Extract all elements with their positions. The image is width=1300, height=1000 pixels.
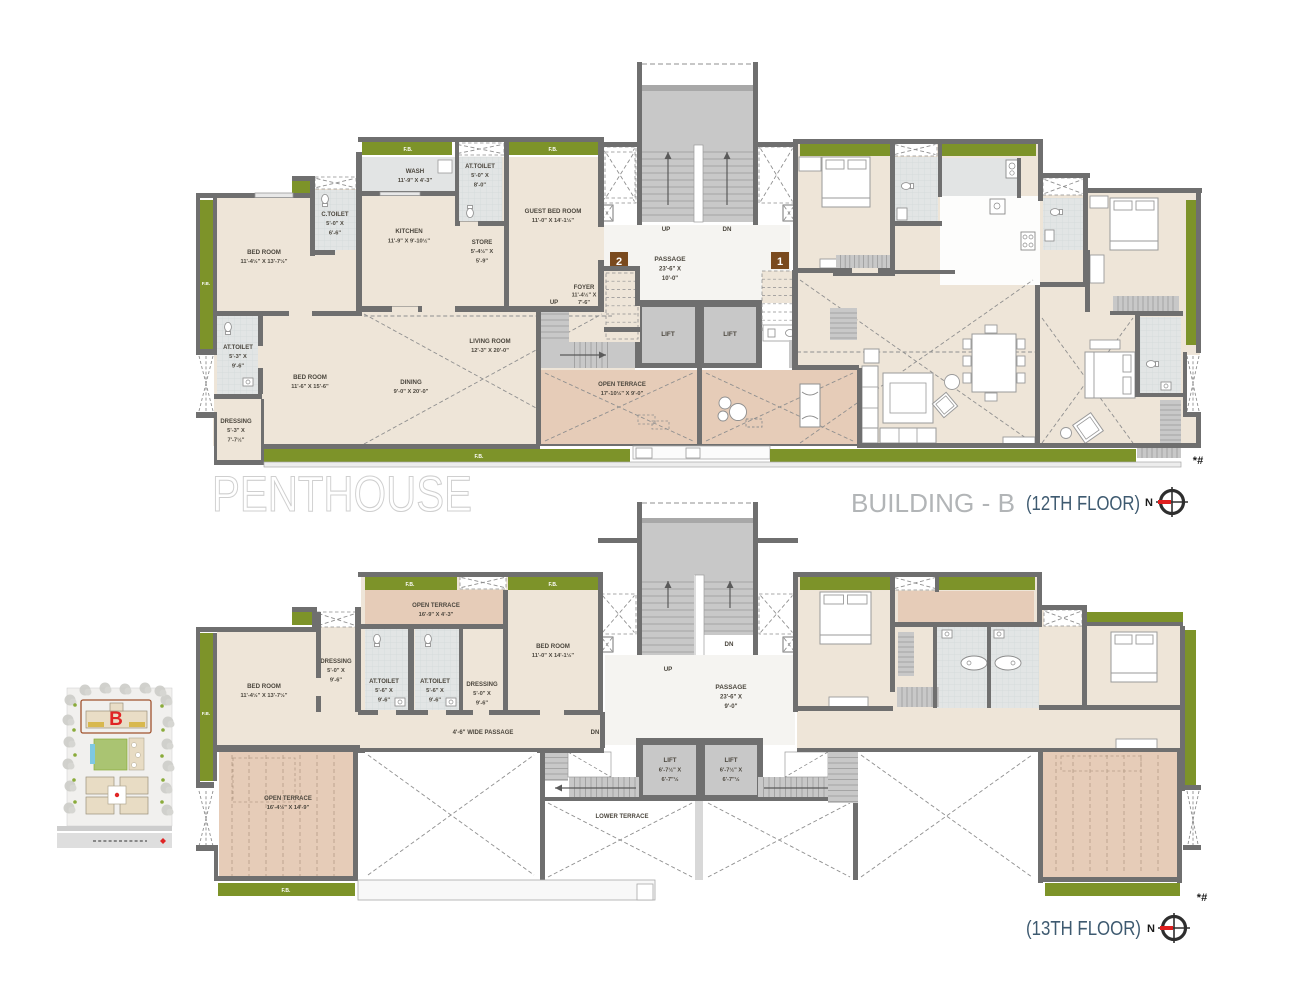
svg-text:GUEST BED ROOM: GUEST BED ROOM <box>525 208 582 215</box>
svg-text:23'-6" X: 23'-6" X <box>720 695 742 701</box>
svg-text:BED ROOM: BED ROOM <box>247 249 281 256</box>
svg-text:BED ROOM: BED ROOM <box>293 374 327 381</box>
svg-text:FOYER: FOYER <box>574 285 595 291</box>
svg-text:F.B.: F.B. <box>549 582 559 588</box>
svg-text:9'-6": 9'-6" <box>429 697 442 703</box>
svg-text:11'-0" X 14'-1½": 11'-0" X 14'-1½" <box>532 217 575 224</box>
svg-text:6'-7½" X: 6'-7½" X <box>659 767 682 774</box>
svg-text:16'-9" X 4'-3": 16'-9" X 4'-3" <box>419 612 454 618</box>
svg-text:UP: UP <box>664 666 673 673</box>
svg-text:AT.TOILET: AT.TOILET <box>369 679 399 685</box>
svg-text:11'-4½" X: 11'-4½" X <box>572 292 597 299</box>
svg-text:F.B.: F.B. <box>202 711 210 716</box>
svg-text:LIFT: LIFT <box>723 331 737 338</box>
svg-text:9'-0" X 20'-0": 9'-0" X 20'-0" <box>394 389 429 395</box>
svg-text:6'-6": 6'-6" <box>329 230 342 236</box>
svg-text:5'-9": 5'-9" <box>476 258 489 264</box>
svg-text:LIFT: LIFT <box>664 757 677 764</box>
svg-text:5'-6" X: 5'-6" X <box>426 688 444 694</box>
svg-text:6'-7½" X: 6'-7½" X <box>720 767 743 774</box>
svg-text:8'-0": 8'-0" <box>474 182 487 188</box>
svg-text:C.TOILET: C.TOILET <box>321 212 349 218</box>
svg-text:DN: DN <box>591 730 600 736</box>
svg-text:F.B.: F.B. <box>549 147 559 153</box>
svg-text:11'-4½" X 13'-7½": 11'-4½" X 13'-7½" <box>241 692 288 699</box>
svg-text:DN: DN <box>723 226 732 233</box>
svg-text:23'-6" X: 23'-6" X <box>659 267 681 273</box>
svg-text:16'-4½" X 14'-9": 16'-4½" X 14'-9" <box>267 804 310 811</box>
svg-text:5'-3" X: 5'-3" X <box>229 354 247 360</box>
svg-text:LIVING ROOM: LIVING ROOM <box>469 338 510 345</box>
svg-text:DN: DN <box>725 641 734 648</box>
svg-text:OPEN TERRACE: OPEN TERRACE <box>598 382 646 388</box>
svg-text:5'-0" X: 5'-0" X <box>326 221 344 227</box>
svg-text:5'-4½" X: 5'-4½" X <box>471 248 494 255</box>
svg-text:BED ROOM: BED ROOM <box>247 683 281 690</box>
svg-text:OPEN TERRACE: OPEN TERRACE <box>412 603 460 609</box>
svg-text:F.B.: F.B. <box>475 454 485 460</box>
svg-text:BED ROOM: BED ROOM <box>536 643 570 650</box>
svg-text:F.B.: F.B. <box>404 147 414 153</box>
svg-text:9'-6": 9'-6" <box>476 700 489 706</box>
svg-text:*#: *# <box>1193 455 1203 467</box>
svg-text:5'-6" X: 5'-6" X <box>375 688 393 694</box>
svg-text:DRESSING: DRESSING <box>320 659 352 665</box>
svg-text:PASSAGE: PASSAGE <box>654 256 686 263</box>
svg-text:STORE: STORE <box>472 240 493 246</box>
svg-text:11'-4½" X 13'-7½": 11'-4½" X 13'-7½" <box>241 258 288 265</box>
svg-text:6'-7"½: 6'-7"½ <box>722 776 739 783</box>
svg-text:10'-0": 10'-0" <box>662 276 678 282</box>
svg-text:11'-9" X 9'-10½": 11'-9" X 9'-10½" <box>388 238 431 245</box>
svg-text:AT.TOILET: AT.TOILET <box>420 679 450 685</box>
svg-text:B: B <box>109 709 123 730</box>
svg-text:12'-3" X 20'-0": 12'-3" X 20'-0" <box>471 348 509 354</box>
svg-text:N: N <box>1147 923 1155 935</box>
svg-text:LOWER TERRACE: LOWER TERRACE <box>596 814 649 820</box>
svg-text:WASH: WASH <box>406 168 425 175</box>
svg-text:F.B.: F.B. <box>202 281 210 286</box>
svg-text:7'-7½": 7'-7½" <box>227 436 244 443</box>
svg-text:5'-0" X: 5'-0" X <box>473 691 491 697</box>
svg-text:LIFT: LIFT <box>725 757 738 764</box>
svg-text:7'-6": 7'-6" <box>578 300 590 306</box>
svg-text:AT.TOILET: AT.TOILET <box>223 345 253 351</box>
svg-text:9'-6": 9'-6" <box>378 697 391 703</box>
svg-text:5'-0" X: 5'-0" X <box>471 173 489 179</box>
svg-text:(13TH FLOOR): (13TH FLOOR) <box>1026 918 1141 940</box>
svg-text:DRESSING: DRESSING <box>466 682 498 688</box>
svg-text:11'-9" X 4'-3": 11'-9" X 4'-3" <box>398 178 433 184</box>
svg-text:6'-7"½: 6'-7"½ <box>661 776 678 783</box>
svg-text:5'-0" X: 5'-0" X <box>327 668 345 674</box>
svg-text:AT.TOILET: AT.TOILET <box>465 164 495 170</box>
svg-text:17'-10½" X 9'-0": 17'-10½" X 9'-0" <box>601 390 644 397</box>
svg-text:11'-6" X 15'-6": 11'-6" X 15'-6" <box>291 384 329 390</box>
svg-text:4'-6" WIDE PASSAGE: 4'-6" WIDE PASSAGE <box>453 730 514 736</box>
svg-text:OPEN TERRACE: OPEN TERRACE <box>264 796 312 802</box>
svg-text:UP: UP <box>550 300 558 306</box>
svg-text:*#: *# <box>1197 892 1207 904</box>
svg-text:PENTHOUSE: PENTHOUSE <box>212 466 472 522</box>
svg-text:UP: UP <box>662 226 671 233</box>
svg-text:F.B.: F.B. <box>406 582 416 588</box>
svg-text:LIFT: LIFT <box>661 331 675 338</box>
svg-text:(12TH FLOOR): (12TH FLOOR) <box>1026 493 1140 515</box>
svg-text:5'-3" X: 5'-3" X <box>227 428 245 434</box>
svg-text:11'-0" X 14'-1½": 11'-0" X 14'-1½" <box>532 652 575 659</box>
svg-text:9'-0": 9'-0" <box>725 704 738 710</box>
svg-text:N: N <box>1145 497 1153 509</box>
svg-text:9'-6": 9'-6" <box>232 363 245 369</box>
svg-text:9'-6": 9'-6" <box>330 677 343 683</box>
svg-text:BUILDING - B: BUILDING - B <box>851 488 1015 518</box>
svg-text:F.B.: F.B. <box>282 888 292 894</box>
svg-text:DINING: DINING <box>400 379 422 386</box>
svg-text:PASSAGE: PASSAGE <box>715 684 747 691</box>
svg-text:KITCHEN: KITCHEN <box>395 228 423 235</box>
svg-text:1: 1 <box>777 256 783 268</box>
svg-text:DRESSING: DRESSING <box>220 419 252 425</box>
